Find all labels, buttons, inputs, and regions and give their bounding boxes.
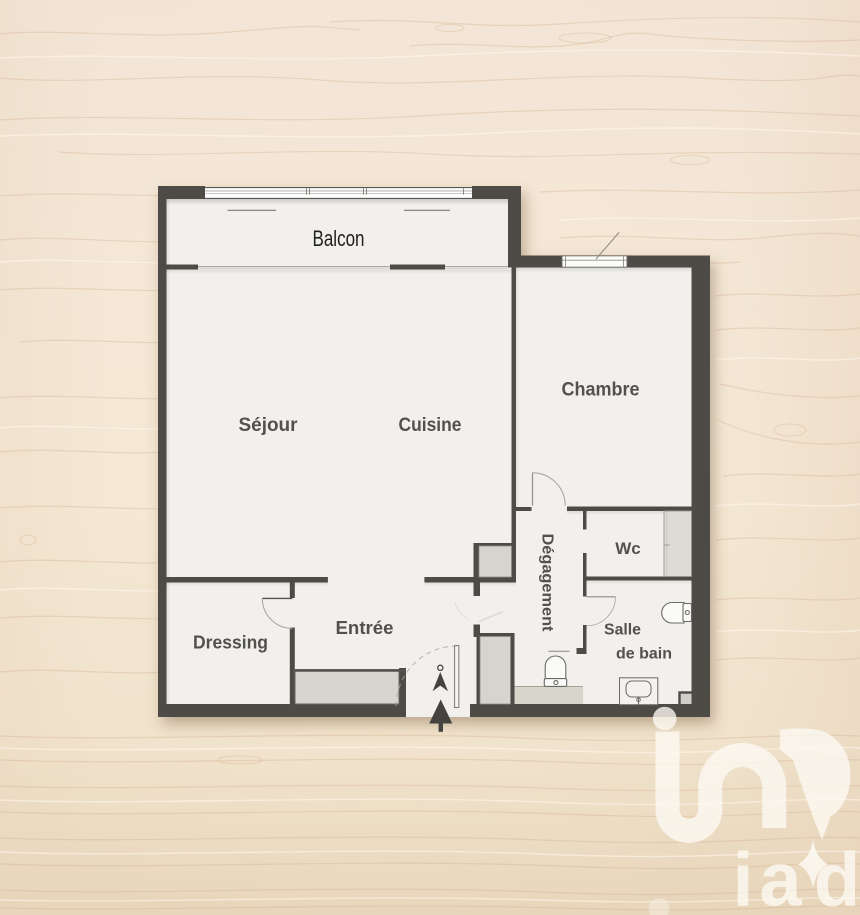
svg-text:Séjour: Séjour bbox=[239, 415, 299, 436]
svg-text:Entrée: Entrée bbox=[336, 617, 394, 638]
svg-text:Balcon: Balcon bbox=[313, 226, 365, 251]
svg-text:Chambre: Chambre bbox=[562, 380, 640, 401]
svg-text:Salle: Salle bbox=[604, 622, 641, 639]
svg-text:iad: iad bbox=[733, 838, 860, 915]
svg-text:Dégagement: Dégagement bbox=[539, 534, 556, 633]
svg-text:de bain: de bain bbox=[616, 646, 672, 663]
svg-text:Dressing: Dressing bbox=[193, 633, 268, 653]
svg-text:Wc: Wc bbox=[615, 539, 641, 558]
svg-text:Cuisine: Cuisine bbox=[399, 415, 462, 436]
